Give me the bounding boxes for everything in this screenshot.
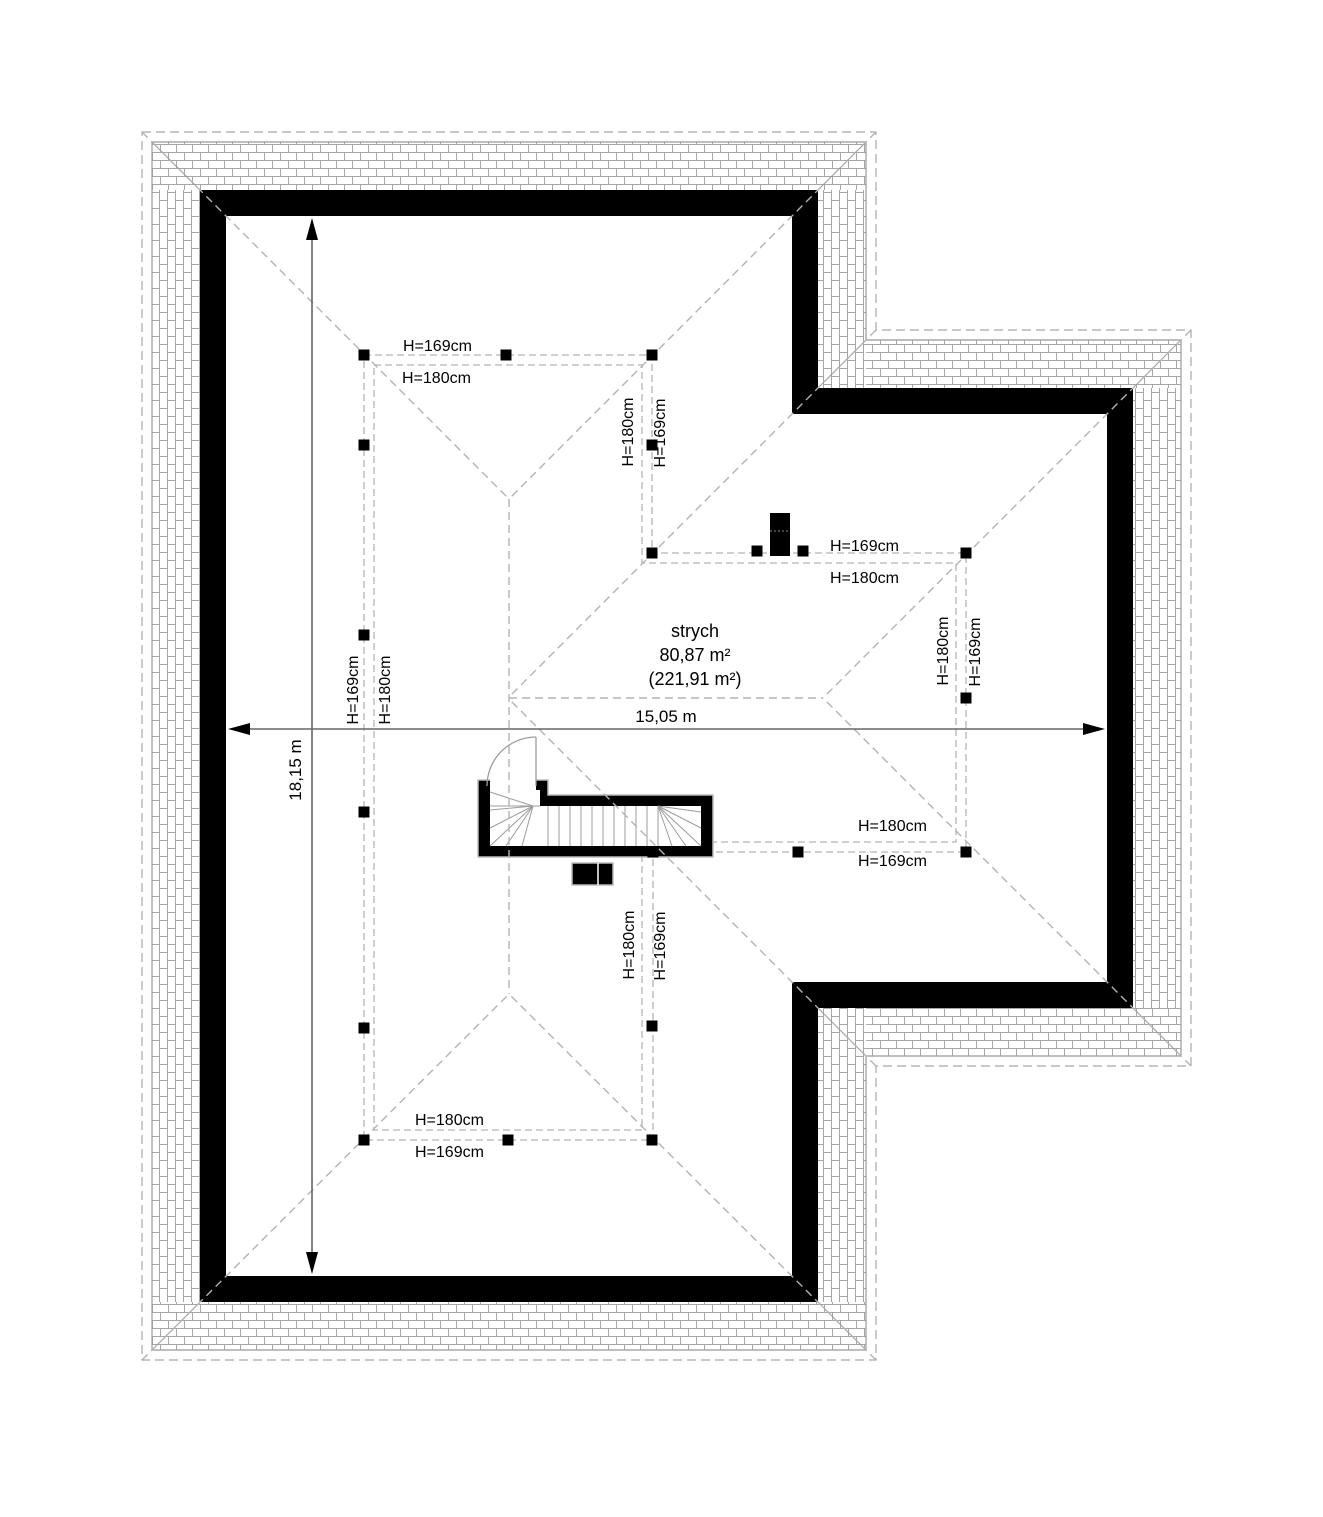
eaves-miter-lines	[152, 142, 1181, 1350]
height-label-ext-right-180: H=180cm	[935, 617, 952, 686]
roof-eaves-band	[152, 142, 1181, 1350]
room-name-label: strych	[671, 621, 719, 641]
height-label-ext-top-169: H=169cm	[830, 538, 899, 555]
chimney-bottom	[572, 863, 613, 885]
height-label-bottom-180: H=180cm	[415, 1112, 484, 1129]
width-dimension-label: 15,05 m	[635, 707, 696, 726]
height-label-right-lower-180: H=180cm	[621, 911, 638, 980]
height-label-right-lower-169: H=169cm	[652, 912, 669, 981]
floor-plan-canvas: strych 80,87 m² (221,91 m²) 15,05 m 18,1…	[0, 0, 1323, 1517]
room-area-label: 80,87 m²	[659, 645, 730, 665]
floor-plan-page: strych 80,87 m² (221,91 m²) 15,05 m 18,1…	[0, 0, 1323, 1517]
room-total-area-label: (221,91 m²)	[648, 669, 741, 689]
chimney-top	[770, 513, 790, 556]
height-label-bottom-169: H=169cm	[415, 1144, 484, 1161]
height-label-ext-bottom-169: H=169cm	[858, 853, 927, 870]
height-label-top-180: H=180cm	[402, 370, 471, 387]
height-label-right-upper-180: H=180cm	[620, 398, 637, 467]
height-label-ext-right-169: H=169cm	[967, 618, 984, 687]
height-label-right-upper-169: H=169cm	[652, 399, 669, 468]
depth-dimension-label: 18,15 m	[286, 739, 305, 800]
depth-dimension	[306, 218, 318, 1274]
height-label-top-169: H=169cm	[403, 338, 472, 355]
door-swing	[487, 737, 536, 786]
height-label-ext-top-180: H=180cm	[830, 570, 899, 587]
height-label-ext-bottom-180: H=180cm	[858, 818, 927, 835]
height-label-left-169: H=169cm	[345, 656, 362, 725]
staircase	[478, 737, 713, 857]
height-label-left-180: H=180cm	[377, 656, 394, 725]
